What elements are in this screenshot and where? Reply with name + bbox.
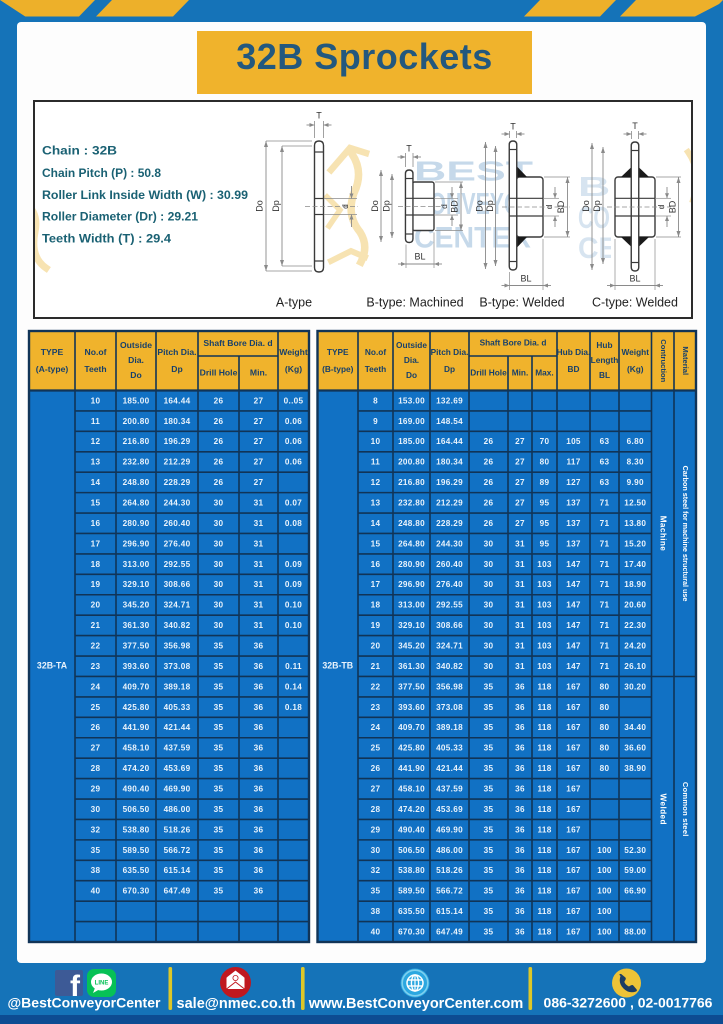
svg-text:153.00: 153.00 [398,396,425,405]
svg-text:31: 31 [515,560,525,569]
svg-text:30: 30 [484,662,494,671]
svg-text:490.40: 490.40 [123,784,150,793]
svg-text:BD: BD [568,364,580,374]
svg-text:474.20: 474.20 [398,805,425,814]
svg-text:566.72: 566.72 [164,846,191,855]
svg-text:36: 36 [515,703,525,712]
svg-text:148.54: 148.54 [436,417,463,426]
svg-text:38: 38 [91,866,101,875]
svg-text:Do: Do [130,370,141,380]
svg-text:0.08: 0.08 [285,519,302,528]
svg-text:30: 30 [214,539,224,548]
svg-text:437.59: 437.59 [436,784,463,793]
svg-text:26: 26 [484,437,494,446]
svg-text:66.90: 66.90 [624,887,646,896]
svg-text:118: 118 [537,744,551,753]
svg-text:137: 137 [566,519,581,528]
svg-text:248.80: 248.80 [123,478,150,487]
svg-text:(Kg): (Kg) [285,364,302,374]
svg-text:0.11: 0.11 [285,662,302,671]
svg-text:147: 147 [566,621,581,630]
svg-text:27: 27 [254,417,264,426]
svg-text:Weight: Weight [622,347,650,357]
svg-text:118: 118 [537,887,551,896]
svg-text:36: 36 [515,682,525,691]
svg-text:36: 36 [515,723,525,732]
svg-text:18: 18 [371,601,381,610]
svg-text:437.59: 437.59 [164,744,191,753]
svg-text:469.90: 469.90 [436,825,463,834]
svg-text:20.60: 20.60 [624,601,646,610]
svg-text:26: 26 [214,437,224,446]
svg-text:361.30: 361.30 [398,662,425,671]
svg-text:228.29: 228.29 [436,519,463,528]
svg-text:Hub: Hub [596,340,612,350]
svg-text:(B-type): (B-type) [322,364,354,374]
svg-text:Dp: Dp [444,364,455,374]
svg-text:40: 40 [91,887,101,896]
svg-text:308.66: 308.66 [436,621,463,630]
svg-text:200.80: 200.80 [398,458,425,467]
svg-text:Dia.: Dia. [404,355,419,365]
svg-text:36: 36 [515,887,525,896]
svg-text:@BestConveyorCenter: @BestConveyorCenter [8,995,161,1011]
svg-text:36: 36 [254,784,264,793]
svg-text:26: 26 [91,723,101,732]
svg-text:30: 30 [214,580,224,589]
svg-text:31: 31 [515,621,525,630]
svg-text:Welded: Welded [659,794,668,825]
svg-text:59.00: 59.00 [624,866,646,875]
svg-text:118: 118 [537,927,551,936]
svg-text:19: 19 [371,621,381,630]
svg-text:36: 36 [515,866,525,875]
svg-text:80: 80 [600,682,610,691]
svg-text:35: 35 [91,846,101,855]
svg-text:35: 35 [214,723,224,732]
svg-text:405.33: 405.33 [164,703,191,712]
svg-text:30: 30 [214,560,224,569]
svg-text:9.90: 9.90 [627,478,644,487]
svg-text:421.44: 421.44 [436,764,463,773]
svg-text:167: 167 [566,887,581,896]
svg-text:196.29: 196.29 [164,437,191,446]
svg-text:324.71: 324.71 [164,601,191,610]
svg-text:36: 36 [515,744,525,753]
svg-text:0.07: 0.07 [285,499,302,508]
svg-text:0.06: 0.06 [285,458,302,467]
svg-text:26.10: 26.10 [624,662,646,671]
svg-text:296.90: 296.90 [398,580,425,589]
svg-text:264.80: 264.80 [123,499,150,508]
svg-text:421.44: 421.44 [164,723,191,732]
svg-text:405.33: 405.33 [436,744,463,753]
svg-text:8: 8 [373,396,378,405]
svg-text:103: 103 [537,580,552,589]
svg-text:TYPE: TYPE [41,347,64,357]
svg-text:36: 36 [515,784,525,793]
svg-text:Material: Material [681,346,690,375]
svg-text:232.80: 232.80 [398,499,425,508]
svg-text:Teeth: Teeth [84,364,106,374]
svg-text:26: 26 [214,396,224,405]
svg-text:6.80: 6.80 [627,437,644,446]
svg-text:147: 147 [566,641,581,650]
svg-text:313.00: 313.00 [398,601,425,610]
svg-text:sale@nmec.co.th: sale@nmec.co.th [177,996,296,1012]
svg-text:89: 89 [540,478,550,487]
svg-text:228.29: 228.29 [164,478,191,487]
svg-text:167: 167 [566,907,581,916]
svg-text:103: 103 [537,560,552,569]
svg-text:80: 80 [600,744,610,753]
svg-text:22: 22 [91,641,101,650]
svg-text:No.of: No.of [85,347,107,357]
svg-text:12: 12 [91,437,101,446]
svg-text:31: 31 [515,641,525,650]
svg-text:30: 30 [484,621,494,630]
svg-text:Do: Do [406,370,417,380]
svg-text:17.40: 17.40 [624,560,646,569]
svg-text:441.90: 441.90 [398,764,425,773]
svg-text:71: 71 [600,519,610,528]
svg-text:32B-TB: 32B-TB [322,661,353,671]
svg-text:377.50: 377.50 [398,682,425,691]
svg-text:95: 95 [540,499,550,508]
svg-text:24: 24 [371,723,381,732]
svg-text:292.55: 292.55 [436,601,463,610]
svg-text:425.80: 425.80 [123,703,150,712]
svg-text:Min.: Min. [250,368,267,378]
svg-text:27: 27 [254,478,264,487]
svg-text:30: 30 [371,846,381,855]
svg-text:71: 71 [600,641,610,650]
svg-text:292.55: 292.55 [164,560,191,569]
svg-text:356.98: 356.98 [436,682,463,691]
svg-text:28: 28 [91,764,101,773]
svg-text:670.30: 670.30 [398,927,425,936]
svg-text:13: 13 [371,499,381,508]
svg-text:31: 31 [254,621,264,630]
svg-text:393.60: 393.60 [398,703,425,712]
svg-text:95: 95 [540,519,550,528]
svg-text:Machine: Machine [659,516,668,552]
svg-text:103: 103 [537,621,552,630]
svg-text:63: 63 [600,437,610,446]
svg-text:296.90: 296.90 [123,539,150,548]
svg-text:118: 118 [537,846,551,855]
svg-text:26: 26 [214,478,224,487]
svg-text:LINE: LINE [95,981,109,987]
svg-text:26: 26 [214,417,224,426]
svg-text:Pitch Dia.: Pitch Dia. [157,347,196,357]
svg-text:36: 36 [254,682,264,691]
svg-text:30: 30 [484,641,494,650]
svg-text:TYPE: TYPE [327,347,349,357]
svg-text:31: 31 [515,539,525,548]
svg-text:486.00: 486.00 [436,846,463,855]
svg-text:Shaft Bore Dia. d: Shaft Bore Dia. d [203,338,272,348]
svg-text:30: 30 [91,805,101,814]
svg-text:23: 23 [91,662,101,671]
svg-text:31: 31 [254,560,264,569]
svg-text:30: 30 [214,519,224,528]
svg-text:18: 18 [91,560,101,569]
svg-text:453.69: 453.69 [164,764,191,773]
svg-text:36: 36 [254,744,264,753]
svg-text:35: 35 [484,784,494,793]
svg-text:35: 35 [484,887,494,896]
svg-text:361.30: 361.30 [123,621,150,630]
svg-text:167: 167 [566,805,581,814]
svg-text:518.26: 518.26 [436,866,463,875]
svg-text:24.20: 24.20 [624,641,646,650]
svg-text:260.40: 260.40 [436,560,463,569]
svg-text:www.BestConveyorCenter.com: www.BestConveyorCenter.com [308,996,524,1012]
svg-text:169.00: 169.00 [398,417,425,426]
svg-text:35: 35 [214,764,224,773]
svg-text:18.90: 18.90 [624,580,646,589]
svg-text:35: 35 [214,846,224,855]
svg-text:Outside: Outside [120,340,152,350]
svg-text:36: 36 [515,764,525,773]
svg-text:30: 30 [214,499,224,508]
svg-text:20: 20 [91,601,101,610]
svg-text:147: 147 [566,601,581,610]
svg-text:27: 27 [371,784,381,793]
svg-text:538.80: 538.80 [123,825,150,834]
svg-text:118: 118 [537,907,551,916]
svg-text:27: 27 [515,499,525,508]
svg-text:196.29: 196.29 [436,478,463,487]
svg-text:38: 38 [371,907,381,916]
svg-text:280.90: 280.90 [398,560,425,569]
svg-text:0..05: 0..05 [284,396,304,405]
svg-text:Weight: Weight [279,347,308,357]
svg-text:Contruction: Contruction [659,339,668,382]
svg-text:324.71: 324.71 [436,641,463,650]
svg-text:31: 31 [515,662,525,671]
svg-text:24: 24 [91,682,101,691]
svg-text:425.80: 425.80 [398,744,425,753]
svg-text:36: 36 [515,825,525,834]
svg-text:23: 23 [371,703,381,712]
svg-text:35: 35 [214,703,224,712]
svg-text:36: 36 [515,846,525,855]
svg-text:32: 32 [371,866,381,875]
svg-text:474.20: 474.20 [123,764,150,773]
svg-text:30: 30 [484,601,494,610]
svg-text:490.40: 490.40 [398,825,425,834]
svg-text:30: 30 [484,580,494,589]
svg-text:36: 36 [254,641,264,650]
svg-text:393.60: 393.60 [123,662,150,671]
svg-text:373.08: 373.08 [436,703,463,712]
svg-text:280.90: 280.90 [123,519,150,528]
svg-text:63: 63 [600,458,610,467]
svg-text:11: 11 [91,417,100,426]
svg-text:88.00: 88.00 [624,927,646,936]
svg-text:117: 117 [566,458,580,467]
svg-text:103: 103 [537,662,552,671]
svg-text:31: 31 [254,601,264,610]
svg-text:30.20: 30.20 [624,682,646,691]
svg-text:Dp: Dp [171,364,182,374]
svg-text:Teeth: Teeth [365,364,387,374]
svg-text:15: 15 [371,539,381,548]
svg-text:26: 26 [484,458,494,467]
svg-text:36: 36 [515,927,525,936]
svg-text:345.20: 345.20 [123,601,150,610]
svg-text:35: 35 [484,825,494,834]
svg-text:35: 35 [214,887,224,896]
svg-text:164.44: 164.44 [436,437,463,446]
svg-text:118: 118 [537,703,551,712]
svg-text:118: 118 [537,784,551,793]
svg-text:458.10: 458.10 [398,784,425,793]
svg-text:12: 12 [371,478,381,487]
svg-text:27: 27 [515,478,525,487]
svg-text:35: 35 [214,641,224,650]
svg-text:589.50: 589.50 [123,846,150,855]
svg-text:34.40: 34.40 [624,723,646,732]
svg-text:27: 27 [515,437,525,446]
svg-text:356.98: 356.98 [164,641,191,650]
svg-text:0.09: 0.09 [285,580,302,589]
svg-text:Common steel: Common steel [681,782,690,837]
svg-text:35: 35 [484,744,494,753]
svg-text:36: 36 [254,723,264,732]
svg-text:167: 167 [566,846,581,855]
svg-text:36: 36 [254,805,264,814]
svg-text:26: 26 [484,519,494,528]
svg-text:(A-type): (A-type) [36,364,69,374]
svg-text:635.50: 635.50 [123,866,150,875]
svg-text:276.40: 276.40 [436,580,463,589]
svg-text:Dia.: Dia. [128,355,144,365]
svg-text:345.20: 345.20 [398,641,425,650]
svg-text:35: 35 [214,662,224,671]
svg-text:216.80: 216.80 [123,437,150,446]
svg-text:100: 100 [597,846,612,855]
svg-text:409.70: 409.70 [123,682,150,691]
svg-text:27: 27 [254,458,264,467]
svg-text:36: 36 [254,887,264,896]
svg-text:615.14: 615.14 [436,907,463,916]
svg-text:100: 100 [597,866,612,875]
svg-text:167: 167 [566,866,581,875]
svg-text:216.80: 216.80 [398,478,425,487]
svg-text:36: 36 [515,907,525,916]
svg-text:167: 167 [566,764,581,773]
svg-text:13.80: 13.80 [624,519,646,528]
svg-text:71: 71 [600,560,610,569]
svg-text:453.69: 453.69 [436,805,463,814]
svg-text:40: 40 [371,927,381,936]
svg-text:30: 30 [484,539,494,548]
svg-text:10: 10 [371,437,381,446]
svg-text:31: 31 [254,519,264,528]
svg-text:71: 71 [600,621,610,630]
svg-text:118: 118 [537,682,551,691]
svg-text:167: 167 [566,927,581,936]
svg-text:389.18: 389.18 [436,723,463,732]
svg-text:52.30: 52.30 [624,846,646,855]
svg-text:35: 35 [214,825,224,834]
svg-text:147: 147 [566,560,581,569]
svg-text:10: 10 [91,396,101,405]
svg-text:11: 11 [371,458,380,467]
svg-text:441.90: 441.90 [123,723,150,732]
svg-text:31: 31 [254,499,264,508]
svg-text:118: 118 [537,764,551,773]
svg-text:118: 118 [537,805,551,814]
svg-text:Shaft Bore Dia. d: Shaft Bore Dia. d [480,338,547,348]
svg-text:185.00: 185.00 [398,437,425,446]
svg-text:30: 30 [214,601,224,610]
svg-text:35: 35 [484,846,494,855]
svg-text:538.80: 538.80 [398,866,425,875]
svg-text:0.10: 0.10 [285,621,302,630]
svg-text:373.08: 373.08 [164,662,191,671]
svg-text:13: 13 [91,458,101,467]
svg-text:35: 35 [371,887,381,896]
svg-text:35: 35 [484,682,494,691]
svg-text:35: 35 [214,866,224,875]
svg-text:29: 29 [371,825,381,834]
svg-text:105: 105 [566,437,581,446]
svg-text:670.30: 670.30 [123,887,150,896]
svg-text:167: 167 [566,825,581,834]
svg-text:518.26: 518.26 [164,825,191,834]
svg-text:127: 127 [566,478,581,487]
svg-text:26: 26 [484,499,494,508]
svg-text:9: 9 [373,417,378,426]
svg-text:167: 167 [566,784,581,793]
svg-text:Outside: Outside [396,340,427,350]
svg-text:589.50: 589.50 [398,887,425,896]
svg-text:635.50: 635.50 [398,907,425,916]
svg-text:200.80: 200.80 [123,417,150,426]
svg-text:80: 80 [540,458,550,467]
svg-text:0.09: 0.09 [285,560,302,569]
svg-text:35: 35 [214,682,224,691]
svg-text:80: 80 [600,703,610,712]
svg-text:Length: Length [591,355,619,365]
svg-text:36: 36 [254,764,264,773]
svg-text:71: 71 [600,601,610,610]
svg-text:63: 63 [600,478,610,487]
svg-text:36: 36 [515,805,525,814]
svg-text:21: 21 [371,662,381,671]
svg-text:12.50: 12.50 [624,499,646,508]
svg-text:21: 21 [91,621,101,630]
svg-text:27: 27 [515,458,525,467]
svg-text:647.49: 647.49 [436,927,463,936]
svg-text:29: 29 [91,784,101,793]
svg-text:80: 80 [600,764,610,773]
svg-text:132.69: 132.69 [436,396,463,405]
svg-text:35: 35 [214,784,224,793]
svg-text:35: 35 [214,744,224,753]
svg-text:103: 103 [537,641,552,650]
svg-text:32B-TA: 32B-TA [37,661,68,671]
svg-text:15: 15 [91,499,101,508]
svg-text:Carbon steel for machine struc: Carbon steel for machine structural use [681,466,690,602]
svg-text:31: 31 [515,601,525,610]
svg-text:25: 25 [91,703,101,712]
svg-text:0.14: 0.14 [285,682,302,691]
